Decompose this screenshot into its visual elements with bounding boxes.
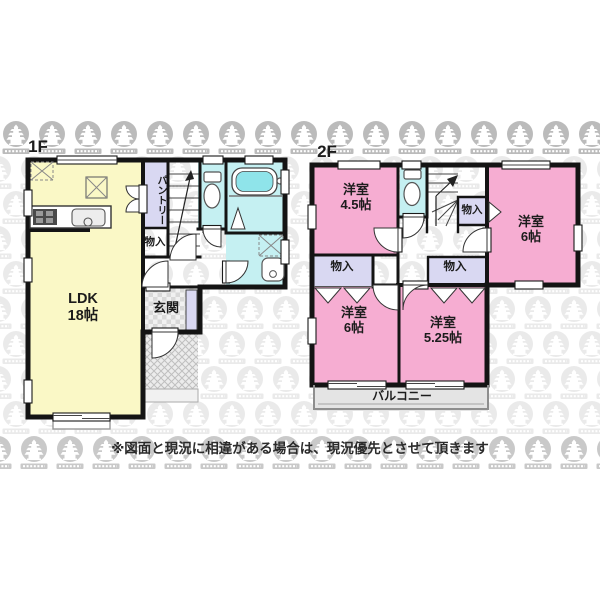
room-size: 4.5帖 bbox=[324, 197, 388, 212]
watermark-logo bbox=[111, 121, 138, 154]
shoe-cabinet bbox=[186, 290, 197, 330]
watermark-logo bbox=[525, 296, 552, 329]
floor2-label: 2F bbox=[311, 142, 343, 162]
watermark-logo bbox=[273, 366, 300, 399]
watermark-logo bbox=[525, 366, 552, 399]
toilet-fixture-2f bbox=[404, 170, 421, 206]
toilet-fixture-1f bbox=[204, 172, 221, 208]
porch-step bbox=[143, 389, 198, 402]
balcony-label: バルコニー bbox=[352, 389, 452, 403]
watermark-logo bbox=[507, 331, 534, 364]
watermark-logo bbox=[579, 261, 600, 294]
watermark-logo bbox=[399, 121, 426, 154]
watermark-logo bbox=[453, 156, 480, 189]
watermark-logo bbox=[147, 121, 174, 154]
bedroom-5-25-label: 洋室 5.25帖 bbox=[408, 315, 478, 346]
watermark-logo bbox=[0, 366, 12, 399]
watermark-logo bbox=[201, 296, 228, 329]
watermark-logo bbox=[435, 121, 462, 154]
storage-hall-label: 物入 bbox=[455, 204, 489, 216]
bedroom-6bl-label: 洋室 6帖 bbox=[322, 305, 386, 336]
watermark-logo bbox=[507, 401, 534, 434]
watermark-logo bbox=[597, 156, 600, 189]
room-name: 洋室 bbox=[322, 305, 386, 320]
watermark-logo bbox=[417, 226, 444, 259]
room-size: 6帖 bbox=[322, 320, 386, 335]
floorplan-image: 1F 2F LDK 18帖 パントリー 物入 玄関 洋室 4.5帖 洋室 6帖 … bbox=[0, 0, 600, 600]
watermark-logo bbox=[543, 331, 570, 364]
floor1-label: 1F bbox=[22, 137, 54, 157]
kitchen-counter bbox=[30, 206, 111, 228]
storage-left-label: 物入 bbox=[320, 261, 364, 275]
watermark-logo bbox=[0, 156, 12, 189]
watermark-logo bbox=[579, 121, 600, 154]
watermark-logo bbox=[543, 121, 570, 154]
watermark-logo bbox=[75, 121, 102, 154]
watermark-logo bbox=[3, 331, 30, 364]
room-size: 5.25帖 bbox=[408, 330, 478, 345]
watermark-logo bbox=[3, 401, 30, 434]
pantry-label: パントリー bbox=[146, 175, 166, 225]
ldk-sliding-window bbox=[53, 413, 110, 421]
watermark-logo bbox=[363, 121, 390, 154]
watermark-logo bbox=[219, 121, 246, 154]
watermark-logo bbox=[597, 226, 600, 259]
ldk-room bbox=[28, 160, 143, 417]
watermark-logo bbox=[0, 296, 12, 329]
bathtub bbox=[232, 168, 283, 195]
watermark-logo bbox=[561, 296, 588, 329]
watermark-logo bbox=[255, 401, 282, 434]
storage-mid-label: 物入 bbox=[432, 261, 478, 275]
watermark-logo bbox=[183, 121, 210, 154]
watermark-logo bbox=[507, 121, 534, 154]
entrance-door-arc bbox=[142, 261, 168, 287]
watermark-logo bbox=[543, 401, 570, 434]
disclaimer-text: ※図面と現況に相違がある場合は、現況優先とさせて頂きます bbox=[0, 437, 600, 457]
room-name: 洋室 bbox=[324, 182, 388, 197]
watermark-logo bbox=[273, 296, 300, 329]
balcony-slider-right bbox=[406, 381, 464, 389]
watermark-logo bbox=[219, 401, 246, 434]
watermark-logo bbox=[471, 121, 498, 154]
storage-1f-label: 物入 bbox=[141, 236, 169, 248]
bedroom-4-5-label: 洋室 4.5帖 bbox=[324, 182, 388, 213]
watermark-logo bbox=[489, 296, 516, 329]
watermark-logo bbox=[219, 331, 246, 364]
room-size: 6帖 bbox=[498, 229, 564, 244]
ldk-size: 18帖 bbox=[48, 308, 118, 325]
watermark-logo bbox=[201, 366, 228, 399]
ldk-name: LDK bbox=[48, 291, 118, 308]
watermark-logo bbox=[597, 296, 600, 329]
room-name: 洋室 bbox=[498, 214, 564, 229]
watermark-logo bbox=[237, 366, 264, 399]
watermark-logo bbox=[255, 331, 282, 364]
watermark-logo bbox=[255, 121, 282, 154]
watermark-logo bbox=[579, 401, 600, 434]
watermark-logo bbox=[579, 331, 600, 364]
balcony-slider-left bbox=[328, 381, 386, 389]
room-name: 洋室 bbox=[408, 315, 478, 330]
watermark-logo bbox=[0, 226, 12, 259]
watermark-logo bbox=[579, 191, 600, 224]
watermark-logo bbox=[147, 401, 174, 434]
watermark-logo bbox=[237, 296, 264, 329]
watermark-logo bbox=[489, 366, 516, 399]
entrance-label: 玄関 bbox=[145, 300, 187, 315]
watermark-logo bbox=[561, 366, 588, 399]
bedroom-6tr-label: 洋室 6帖 bbox=[498, 214, 564, 245]
ldk-label: LDK 18帖 bbox=[48, 291, 118, 325]
watermark-logo bbox=[183, 401, 210, 434]
watermark-logo bbox=[597, 366, 600, 399]
